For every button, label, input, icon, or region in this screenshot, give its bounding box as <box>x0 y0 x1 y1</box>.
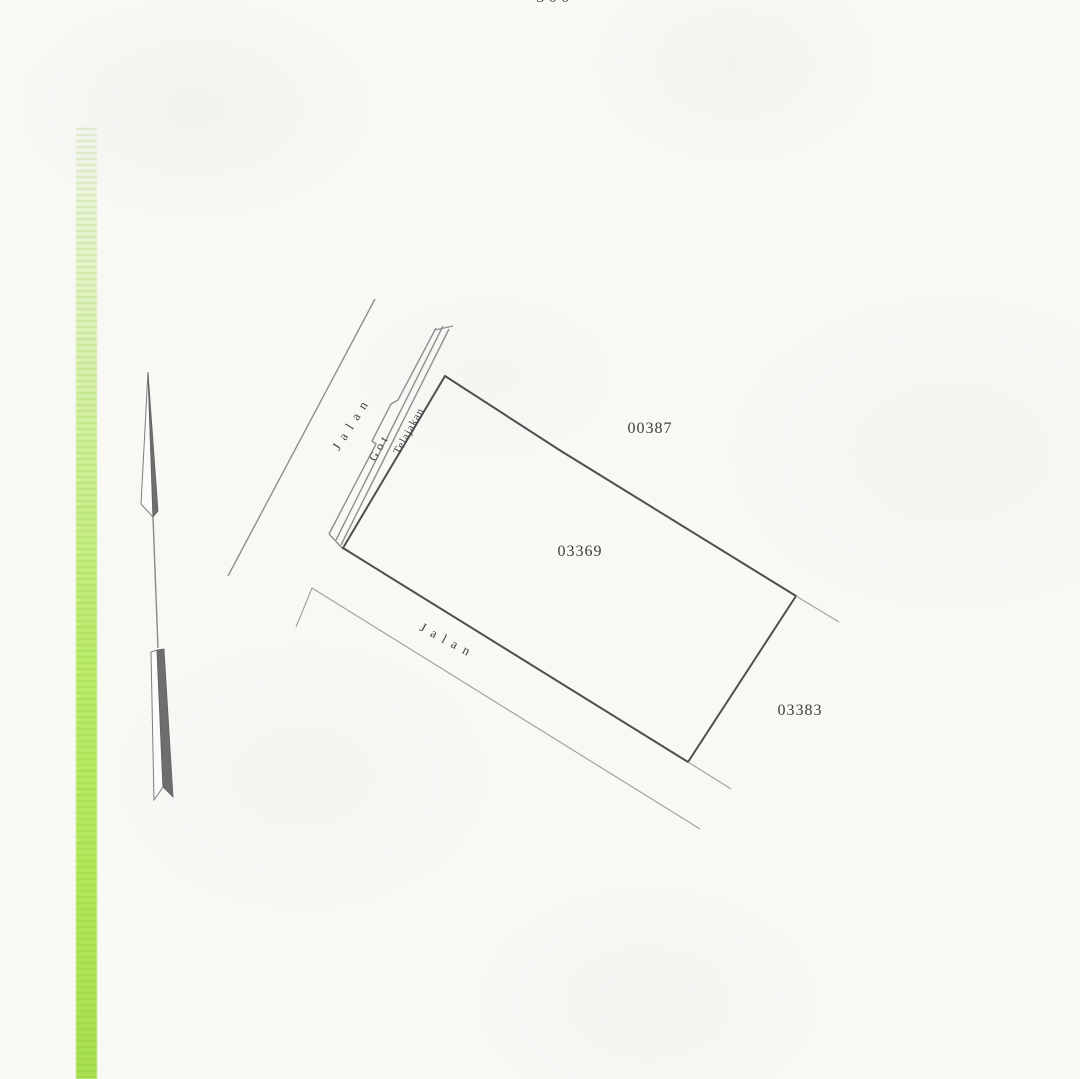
gutter-label: Got <box>365 431 392 464</box>
boundary-extension-bottom <box>688 762 731 789</box>
verge-label: Telajakan <box>391 406 427 457</box>
gutter-line-inner <box>341 329 449 545</box>
cadastral-sketch: 00387 03369 03383 Jalan Got Telajakan Ja… <box>0 0 1080 1079</box>
neighbor-parcel-top-label: 00387 <box>628 420 673 437</box>
road-upper-label: Jalan <box>329 393 374 453</box>
gutter-strip-bottom-cap <box>329 534 343 549</box>
neighbor-parcel-right-label: 03383 <box>778 702 823 719</box>
scanned-page: 500 <box>0 0 1080 1079</box>
road-upper-far-edge <box>228 299 375 576</box>
gutter-strip-top-cap <box>435 326 453 330</box>
north-arrow <box>141 372 173 800</box>
subject-parcel-label: 03369 <box>558 543 603 560</box>
boundary-extension-right <box>796 596 839 622</box>
north-arrow-shaft <box>153 517 158 648</box>
road-lower-far-edge <box>296 588 700 829</box>
